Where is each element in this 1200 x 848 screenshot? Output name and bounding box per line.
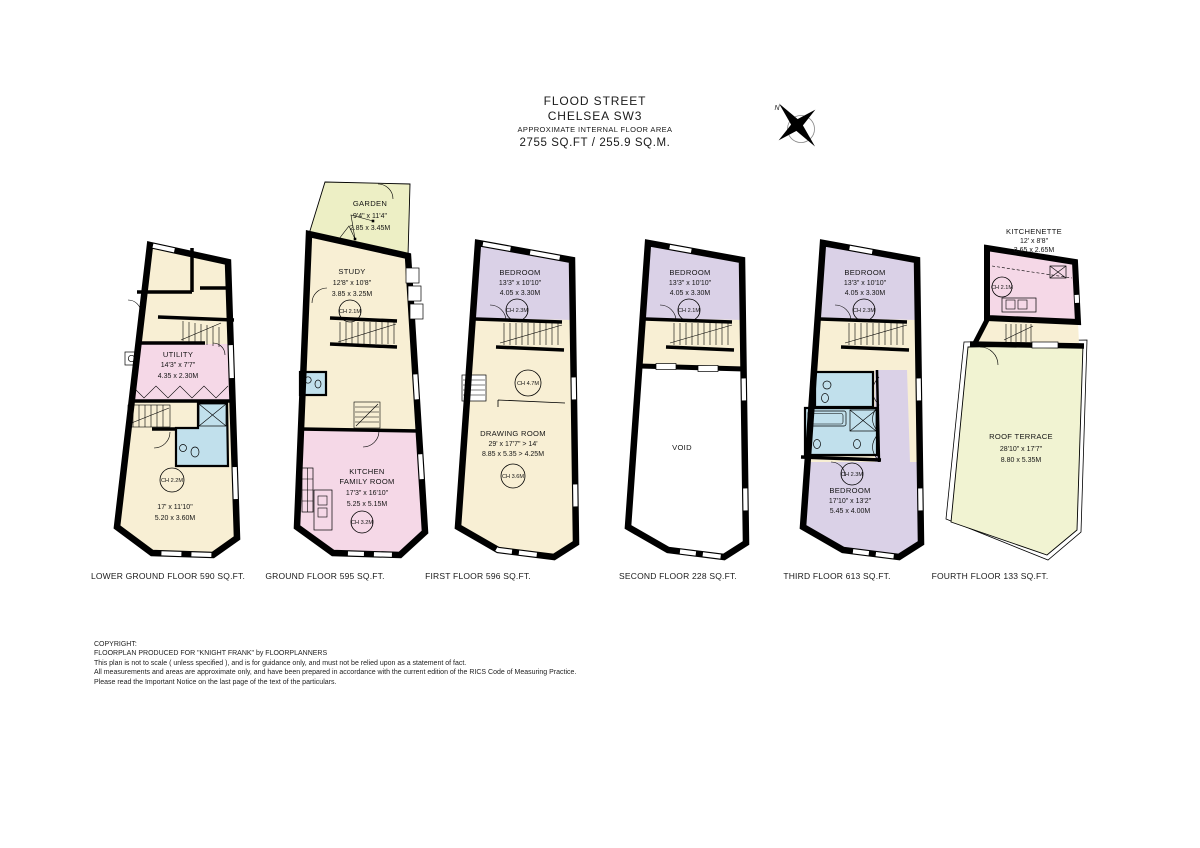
kitchen-ceiling: CH 3.2M (351, 520, 373, 526)
copyright-line-4: All measurements and areas are approxima… (94, 668, 576, 677)
roof-terrace-title: ROOF TERRACE (989, 432, 1053, 441)
floorplan-page: FLOOD STREET CHELSEA SW3 APPROXIMATE INT… (0, 0, 1200, 848)
room-fill-bathroom-1 (815, 372, 873, 407)
study-ceiling: CH 2.1M (339, 309, 361, 315)
utility-imperial: 14'3" x 7'7" (161, 362, 196, 369)
roof-terrace-imperial: 28'10" x 17'7" (1000, 446, 1043, 453)
reception-ceiling: CH 2.2M (161, 478, 183, 484)
reception-metric: 5.20 x 3.60M (155, 515, 196, 522)
landing-window (1032, 342, 1058, 348)
bedroom-title: BEDROOM (499, 268, 540, 277)
drawing-room-ceiling-rear: CH 3.6M (502, 474, 524, 480)
copyright-line-2: FLOORPLAN PRODUCED FOR "KNIGHT FRANK" by… (94, 649, 576, 658)
bedroom-front-metric: 4.05 x 3.30M (845, 290, 886, 297)
kitchen-title-1: KITCHEN (349, 467, 384, 476)
floorplan-third: BEDROOM 13'3" x 10'10" 4.05 x 3.30M CH 2… (795, 235, 960, 570)
drawing-room-ceiling-front: CH 4.7M (517, 381, 539, 387)
copyright-line-3: This plan is not to scale ( unless speci… (94, 659, 576, 668)
area-title: CHELSEA SW3 (445, 109, 745, 124)
garden-imperial: 9'4" x 11'4" (353, 213, 387, 220)
compass-north-label: N (774, 105, 780, 112)
compass-icon: N (765, 96, 835, 158)
bedroom-rear-ceiling: CH 2.3M (841, 472, 863, 478)
floorplan-ground: GARDEN 9'4" x 11'4" 2.85 x 3.45M STUDY 1… (278, 172, 453, 572)
drawing-room-metric: 8.85 x 5.35 > 4.25M (482, 451, 544, 458)
title-block: FLOOD STREET CHELSEA SW3 APPROXIMATE INT… (445, 94, 745, 151)
floor-label-fourth: FOURTH FLOOR 133 SQ.FT. (880, 571, 1100, 581)
copyright-block: COPYRIGHT: FLOORPLAN PRODUCED FOR "KNIGH… (94, 640, 576, 687)
kitchenette-ceiling: CH 2.1M (991, 285, 1013, 291)
floor-area-note: APPROXIMATE INTERNAL FLOOR AREA (445, 124, 745, 135)
bedroom-ceiling: CH 2.1M (678, 308, 700, 314)
garden-title: GARDEN (353, 199, 387, 208)
garden-metric: 2.85 x 3.45M (350, 225, 391, 232)
kitchen-imperial: 17'3" x 16'10" (346, 490, 389, 497)
utility-title: UTILITY (163, 350, 193, 359)
kitchenette-metric: 3.65 x 2.65M (1014, 247, 1055, 254)
bedroom-front-title: BEDROOM (844, 268, 885, 277)
floor-label-first: FIRST FLOOR 596 SQ.FT. (368, 571, 588, 581)
study-imperial: 12'8" x 10'8" (333, 280, 372, 287)
floorplan-second: BEDROOM 13'3" x 10'10" 4.05 x 3.30M CH 2… (620, 235, 785, 570)
bedroom-front-imperial: 13'3" x 10'10" (844, 280, 887, 287)
roof-terrace-metric: 8.80 x 5.35M (1001, 457, 1042, 464)
bedroom-rear-metric: 5.45 x 4.00M (830, 508, 871, 515)
floorplan-fourth: KITCHENETTE 12' x 8'8" 3.65 x 2.65M CH 2… (945, 210, 1140, 570)
floorplan-first: BEDROOM 13'3" x 10'10" 4.05 x 3.30M CH 2… (450, 235, 615, 570)
study-metric: 3.85 x 3.25M (332, 291, 373, 298)
utility-metric: 4.35 x 2.30M (158, 373, 199, 380)
bedroom-metric: 4.05 x 3.30M (500, 290, 541, 297)
void-label: VOID (672, 443, 692, 452)
kitchenette-title: KITCHENETTE (1006, 227, 1062, 236)
reception-imperial: 17' x 11'10" (157, 504, 193, 511)
room-fill-wardrobe (875, 370, 910, 462)
room-fill-bathroom-2 (805, 408, 877, 455)
kitchen-title-2: FAMILY ROOM (339, 477, 394, 486)
study-title: STUDY (338, 267, 365, 276)
kitchenette-imperial: 12' x 8'8" (1020, 238, 1049, 245)
kitchen-metric: 5.25 x 5.15M (347, 501, 388, 508)
bedroom-metric: 4.05 x 3.30M (670, 290, 711, 297)
total-area-value: 2755 SQ.FT / 255.9 SQ.M. (445, 135, 745, 151)
copyright-line-5: Please read the Important Notice on the … (94, 678, 576, 687)
room-fill-void (628, 366, 746, 557)
bedroom-ceiling: CH 2.3M (506, 308, 528, 314)
bedroom-title: BEDROOM (669, 268, 710, 277)
bedroom-imperial: 13'3" x 10'10" (499, 280, 542, 287)
bedroom-rear-title: BEDROOM (829, 486, 870, 495)
drawing-room-title: DRAWING ROOM (480, 429, 546, 438)
street-title: FLOOD STREET (445, 94, 745, 109)
drawing-room-imperial: 29' x 17'7" > 14' (488, 441, 537, 448)
bedroom-imperial: 13'3" x 10'10" (669, 280, 712, 287)
bedroom-front-ceiling: CH 2.3M (853, 308, 875, 314)
floorplan-lower-ground: UTILITY 14'3" x 7'7" 4.35 x 2.30M CH 2.2… (95, 240, 265, 570)
bedroom-rear-imperial: 17'10" x 13'2" (829, 498, 872, 505)
copyright-line-1: COPYRIGHT: (94, 640, 576, 649)
